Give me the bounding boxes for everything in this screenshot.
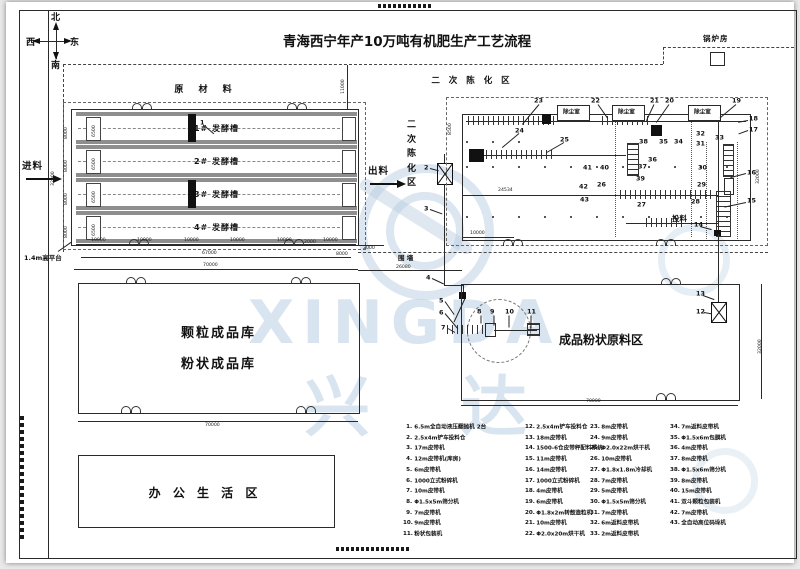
legend-item: 22.Φ2.0x20m烘干机: [525, 530, 585, 538]
compass-east-label: 东: [70, 35, 79, 48]
legend-item-number: 34.: [670, 423, 679, 431]
legend-item-text: Φ2.0x22m烘干机: [601, 444, 650, 452]
legend-item-number: 3.: [403, 444, 412, 452]
legend-item-number: 21.: [525, 519, 534, 527]
legend-item-number: 26.: [590, 455, 599, 463]
dimension-label: 10000: [277, 237, 292, 242]
legend-item-text: Φ1.5x5m筛分机: [601, 498, 646, 506]
legend-item-number: 33.: [590, 530, 599, 538]
leader-line: [481, 316, 482, 324]
vertical-label-char: 化: [405, 162, 418, 177]
dimension-label: 10000: [91, 237, 106, 242]
legend-item-text: 6.5m全自动液压翻抛机 2台: [414, 423, 486, 431]
equipment-number: 4: [426, 274, 430, 281]
legend-item: 35.Φ1.5x6m包膜机: [670, 434, 726, 442]
legend-item-text: Φ1.5x6m筛分机: [681, 466, 726, 474]
granular-warehouse-label: 颗粒成品库: [156, 322, 281, 341]
fermentation-tank: 1# 发酵槽: [76, 112, 357, 144]
dim-line-11000: [347, 65, 348, 109]
legend-item-number: 18.: [525, 487, 534, 495]
legend-item-number: 30.: [590, 498, 599, 506]
legend-item: 24.9m皮带机: [590, 434, 628, 442]
roof-vent: [126, 277, 148, 283]
dimension-label: 6500: [91, 158, 96, 170]
dimension-label: 8000: [63, 193, 68, 205]
feeding-label: 投料: [672, 213, 687, 224]
boiler-room-box: [710, 52, 725, 66]
fence-label: 围 墙: [398, 252, 413, 262]
fermentation-tank: 3# 发酵槽: [76, 178, 357, 210]
illegible-text-top: [378, 4, 433, 8]
equipment-number: 22: [591, 97, 600, 104]
equipment-box: [542, 114, 551, 124]
legend-item-text: Φ1.8x2m转鼓造粒机: [536, 509, 592, 517]
roof-vent: [296, 406, 318, 412]
legend-item: 32.6m返料皮带机: [590, 519, 639, 527]
legend-item-number: 24.: [590, 434, 599, 442]
dimension-label: 26080: [396, 264, 411, 269]
legend-item-text: 17m皮带机: [414, 444, 444, 452]
legend-item-number: 11.: [403, 530, 412, 538]
legend-item-number: 39.: [670, 477, 679, 485]
fermentation-tank: 2# 发酵槽: [76, 145, 357, 177]
grid-dots: [466, 141, 538, 143]
equipment-number: 17: [749, 126, 758, 133]
legend-item-number: 29.: [590, 487, 599, 495]
legend-item: 28.7m皮带机: [590, 477, 628, 485]
boiler-room-label: 锅炉房: [703, 33, 729, 44]
legend-item: 11.粉状包装机: [403, 530, 442, 538]
equipment-box: [527, 323, 540, 336]
dust-room-label: 除尘室: [563, 108, 580, 116]
legend-item-number: 9.: [403, 509, 412, 517]
equipment-number: 7: [441, 324, 445, 331]
legend-item: 3.17m皮带机: [403, 444, 445, 452]
legend-item-text: 1000立式粉碎机: [414, 477, 458, 485]
dimension-label: 24534: [498, 187, 513, 192]
legend-item-number: 10.: [403, 519, 412, 527]
legend-item-text: 7m皮带机: [681, 509, 708, 517]
fence-line: [358, 252, 768, 253]
legend-item-number: 15.: [525, 455, 534, 463]
column-line: [691, 117, 692, 237]
legend-item-number: 22.: [525, 530, 534, 538]
equipment-number: 27: [637, 201, 646, 208]
equipment-number: 37: [638, 163, 647, 170]
dimension-label: 32000: [50, 171, 55, 186]
equipment-number: 36: [648, 156, 657, 163]
dimension-label: 70000: [203, 262, 218, 267]
grid-dots: [466, 216, 746, 218]
tank-label: 3# 发酵槽: [76, 189, 357, 200]
legend-item: 12.2.5x4m铲车投料仓: [525, 423, 587, 431]
vertical-label-char: 次: [405, 133, 418, 148]
legend-item: 34.7m返料皮带机: [670, 423, 719, 431]
legend-item-text: 11m皮带机: [536, 455, 566, 463]
legend-item-text: 粉状包装机: [414, 530, 442, 538]
tank-label: 2# 发酵槽: [76, 156, 357, 167]
tank-end-box: [342, 183, 356, 207]
dim-line-26080: [358, 270, 462, 271]
pipe: [444, 154, 445, 163]
legend-item-text: 6m皮带机: [536, 498, 563, 506]
equipment-number: 39: [636, 175, 645, 182]
legend-item-number: 13.: [525, 434, 534, 442]
column-line: [737, 142, 738, 239]
office-area-label: 办 公 生 活 区: [145, 484, 265, 501]
dimension-label: 67000: [202, 250, 217, 255]
legend-item-text: 14m皮带机: [536, 466, 566, 474]
legend-item-number: 2.: [403, 434, 412, 442]
dimension-label: 8000: [63, 127, 68, 139]
legend-item: 26.10m皮带机: [590, 455, 632, 463]
legend-item-text: 9m皮带机: [414, 519, 441, 527]
legend-item-text: 8m皮带机: [601, 423, 628, 431]
legend-item-number: 23.: [590, 423, 599, 431]
compost-turner: [188, 180, 196, 208]
equipment-number: 30: [698, 164, 707, 171]
legend-item-text: 4m皮带机: [681, 444, 708, 452]
legend-item-number: 14.: [525, 444, 534, 452]
legend-item: 40.15m皮带机: [670, 487, 712, 495]
legend-item-text: 12m皮带机(库房): [414, 455, 461, 463]
equipment-number: 29: [697, 181, 706, 188]
dimension-label: 70000: [205, 422, 220, 427]
dimension-label: 6500: [91, 125, 96, 137]
equipment-number: 8: [477, 308, 481, 315]
legend-item: 9.7m皮带机: [403, 509, 441, 517]
legend-item-number: 35.: [670, 434, 679, 442]
equipment-number: 33: [715, 134, 724, 141]
legend-item: 27.Φ1.8x1.8m冷却机: [590, 466, 652, 474]
dimension-label: 10000: [184, 237, 199, 242]
illegible-text-left: [20, 414, 24, 539]
legend-item-number: 8.: [403, 498, 412, 506]
legend-item-number: 40.: [670, 487, 679, 495]
column-line: [615, 117, 616, 237]
legend-item: 21.10m皮带机: [525, 519, 567, 527]
dimension-label: 32000: [757, 339, 762, 354]
legend-item: 23.8m皮带机: [590, 423, 628, 431]
legend-item-text: 15m皮带机: [681, 487, 711, 495]
legend-item-text: 10m皮带机: [601, 455, 631, 463]
powder-warehouse-label: 粉状成品库: [156, 353, 281, 372]
equipment-number: 10: [505, 308, 514, 315]
aging-area-building: [462, 114, 751, 241]
equipment-number: 9: [490, 308, 494, 315]
dimension-label: 2000: [363, 245, 375, 250]
legend-item: 43.全自动高位码垛机: [670, 519, 726, 527]
dim-line: [74, 269, 358, 270]
legend-item-text: 6m返料皮带机: [601, 519, 639, 527]
legend-item-text: 2.5x4m铲车投料仓: [414, 434, 465, 442]
roof-vent: [291, 277, 313, 283]
equipment-number: 15: [747, 197, 756, 204]
finished-powder-area-label: 成品粉状原料区: [551, 331, 651, 348]
legend-item: 33.2m返料皮带机: [590, 530, 639, 538]
legend-item: 42.7m皮带机: [670, 509, 708, 517]
dimension-label: 10000: [137, 237, 152, 242]
site-boundary-step: [663, 47, 664, 64]
legend-item-number: 17.: [525, 477, 534, 485]
dimension-label: 32000: [755, 169, 760, 184]
site-boundary-top-right: [663, 47, 794, 48]
leader-line: [494, 316, 495, 326]
legend-item-number: 4.: [403, 455, 412, 463]
dust-room-label: 除尘室: [618, 108, 635, 116]
roof-vent: [503, 239, 525, 245]
legend-item: 6.1000立式粉碎机: [403, 477, 458, 485]
legend-item-text: 2m返料皮带机: [601, 530, 639, 538]
tank-end-box: [342, 117, 356, 141]
frame-inner-line: [48, 10, 49, 559]
legend-item-number: 19.: [525, 498, 534, 506]
compass-arrow-north: [53, 22, 59, 30]
drawing-sheet: XINGDA 兴 达 北 南 西 东 青海西宁年产10万吨有机肥生产工艺流程 锅…: [6, 2, 794, 563]
legend-item-text: 8m皮带机: [681, 455, 708, 463]
warehouse-building: [78, 283, 360, 414]
legend-item-text: 7m皮带机: [601, 509, 628, 517]
legend-item-text: 8m皮带机: [681, 477, 708, 485]
roof-vent: [661, 278, 683, 284]
tank-end-box: [342, 216, 356, 240]
legend-item-text: 10m皮带机: [536, 519, 566, 527]
bucket-elevator: [627, 143, 639, 176]
dimension-label: 10000: [470, 230, 485, 235]
legend-item-text: 10m皮带机: [414, 487, 444, 495]
feed-in-label: 进料: [22, 158, 43, 172]
legend-item-number: 28.: [590, 477, 599, 485]
equipment-number: 5: [439, 297, 443, 304]
dim-line-10000: [462, 237, 514, 238]
dimension-label: 8000: [336, 251, 348, 256]
legend-item-number: 16.: [525, 466, 534, 474]
dimension-label: 6500: [91, 191, 96, 203]
site-boundary-top: [63, 64, 663, 65]
dimension-label: 70000: [586, 398, 601, 403]
equipment-number: 2: [424, 164, 428, 171]
legend-item: 2.2.5x4m铲车投料仓: [403, 434, 465, 442]
legend-item: 38.Φ1.5x6m筛分机: [670, 466, 726, 474]
compost-turner: [188, 114, 196, 142]
legend-item-text: 7m皮带机: [601, 477, 628, 485]
dimension-label: 6500: [91, 224, 96, 236]
legend-item-number: 25.: [590, 444, 599, 452]
legend-item-text: Φ1.8x1.8m冷却机: [601, 466, 652, 474]
dimension-label: 10000: [230, 237, 245, 242]
legend-item: 17.1000立式粉碎机: [525, 477, 580, 485]
compass-horizontal-line: [38, 41, 66, 42]
equipment-number: 21: [650, 97, 659, 104]
legend-item: 20.Φ1.8x2m转鼓造粒机: [525, 509, 592, 517]
illegible-text-bottom: [336, 547, 411, 551]
legend-item-text: Φ1.5x5m筛分机: [414, 498, 459, 506]
equipment-number: 38: [639, 138, 648, 145]
compass-north-label: 北: [51, 10, 60, 23]
legend-item-number: 43.: [670, 519, 679, 527]
legend-item-text: 5m皮带机: [601, 487, 628, 495]
legend-item: 5.6m皮带机: [403, 466, 441, 474]
discharge-arrow: [370, 183, 398, 185]
legend-item-text: 4m皮带机: [536, 487, 563, 495]
tank-label: 4# 发酵槽: [76, 222, 357, 233]
legend-item-number: 31.: [590, 509, 599, 517]
legend-item-text: 6m皮带机: [414, 466, 441, 474]
vertical-label-char: 陈: [405, 147, 418, 162]
legend-item-number: 5.: [403, 466, 412, 474]
equipment-number: 35: [659, 138, 668, 145]
equipment-number: 40: [600, 164, 609, 171]
roof-vent: [656, 239, 678, 245]
dimension-label: 8000: [63, 226, 68, 238]
legend-item-number: 12.: [525, 423, 534, 431]
legend-item-number: 42.: [670, 509, 679, 517]
equipment-number: 41: [583, 164, 592, 171]
dimension-label: 8500: [447, 123, 452, 135]
conveyor-hatch: [486, 150, 554, 159]
legend-item: 4.12m皮带机(库房): [403, 455, 461, 463]
roof-vent: [656, 393, 678, 399]
legend-item: 18.4m皮带机: [525, 487, 563, 495]
compass-south-label: 南: [51, 58, 60, 71]
legend-item: 37.8m皮带机: [670, 455, 708, 463]
roof-vent: [132, 103, 154, 109]
legend-item-number: 6.: [403, 477, 412, 485]
legend-item-text: 7m皮带机: [414, 509, 441, 517]
dim-line: [461, 405, 738, 406]
secondary-aging-vertical-label: 二次陈化区: [405, 118, 418, 191]
equipment-number: 20: [665, 97, 674, 104]
raw-material-label: 原 材 料: [164, 82, 248, 95]
dimension-label: 11000: [340, 79, 345, 94]
legend-item-text: 2.5x4m铲车投料仓: [536, 423, 587, 431]
legend-item-number: 38.: [670, 466, 679, 474]
vertical-label-char: 区: [405, 176, 418, 191]
legend-item-number: 1.: [403, 423, 412, 431]
legend-item: 25.Φ2.0x22m烘干机: [590, 444, 650, 452]
vertical-label-char: 二: [405, 118, 418, 133]
drawing-title: 青海西宁年产10万吨有机肥生产工艺流程: [276, 30, 538, 50]
legend-item: 30.Φ1.5x5m筛分机: [590, 498, 646, 506]
legend-item-text: 1000立式粉碎机: [536, 477, 580, 485]
equipment-number: 42: [579, 183, 588, 190]
platform-label: 1.4m高平台: [24, 252, 62, 262]
roof-vent: [287, 103, 309, 109]
legend-item: 7.10m皮带机: [403, 487, 445, 495]
equipment-number: 3: [424, 205, 428, 212]
leader-line: [531, 316, 532, 329]
legend-item: 1.6.5m全自动液压翻抛机 2台: [403, 423, 486, 431]
legend-item-number: 37.: [670, 455, 679, 463]
equipment-number: 28: [691, 198, 700, 205]
equipment-number: 34: [674, 138, 683, 145]
equipment-number: 19: [732, 97, 741, 104]
equipment-number: 11: [527, 308, 536, 315]
legend-item-number: 27.: [590, 466, 599, 474]
legend-item-text: 双斗颗粒包装机: [681, 498, 720, 506]
equipment-number: 26: [597, 181, 606, 188]
leader-line: [509, 316, 510, 328]
legend-item: 31.7m皮带机: [590, 509, 628, 517]
legend-item: 8.Φ1.5x5m筛分机: [403, 498, 459, 506]
equipment-number: 32: [696, 130, 705, 137]
legend-item: 15.11m皮带机: [525, 455, 567, 463]
cad-drawing-viewport: XINGDA 兴 达 北 南 西 东 青海西宁年产10万吨有机肥生产工艺流程 锅…: [0, 0, 800, 569]
legend-item: 19.6m皮带机: [525, 498, 563, 506]
legend-item-number: 32.: [590, 519, 599, 527]
conveyor-hatch: [447, 325, 484, 334]
legend-item-text: 全自动高位码垛机: [681, 519, 726, 527]
legend-item: 41.双斗颗粒包装机: [670, 498, 720, 506]
legend-item: 29.5m皮带机: [590, 487, 628, 495]
secondary-aging-label: 二 次 陈 化 区: [429, 74, 515, 86]
equipment-column: [723, 144, 734, 177]
roof-vent: [121, 406, 143, 412]
legend-item-text: 18m皮带机: [536, 434, 566, 442]
equipment-number: 18: [749, 115, 758, 122]
dimension-label: 10000: [323, 237, 338, 242]
legend-item-number: 20.: [525, 509, 534, 517]
tank-label: 1# 发酵槽: [76, 123, 357, 134]
dim-line: [81, 257, 351, 258]
discharge-label: 出料: [368, 163, 389, 177]
pipe: [444, 184, 445, 285]
legend-item: 39.8m皮带机: [670, 477, 708, 485]
equipment-number: 43: [580, 196, 589, 203]
legend-item-text: 7m返料皮带机: [681, 423, 719, 431]
equipment-number: 31: [696, 140, 705, 147]
dust-room-label: 除尘室: [694, 108, 711, 116]
tank-end-box: [342, 150, 356, 174]
legend-item: 16.14m皮带机: [525, 466, 567, 474]
legend-item: 36.4m皮带机: [670, 444, 708, 452]
legend-item-text: Φ1.5x6m包膜机: [681, 434, 726, 442]
equipment-box: [469, 149, 484, 162]
legend-item: 13.18m皮带机: [525, 434, 567, 442]
dimension-label: 8000: [63, 160, 68, 172]
equipment-number: 6: [439, 309, 443, 316]
dimension-label: 2000: [304, 239, 316, 244]
legend-item-number: 41.: [670, 498, 679, 506]
legend-item-text: Φ2.0x20m烘干机: [536, 530, 585, 538]
legend-item: 10.9m皮带机: [403, 519, 441, 527]
legend-item-number: 7.: [403, 487, 412, 495]
compass-west-label: 西: [26, 35, 35, 48]
equipment-box: [651, 125, 662, 136]
legend-item-number: 36.: [670, 444, 679, 452]
legend-item-text: 9m皮带机: [601, 434, 628, 442]
